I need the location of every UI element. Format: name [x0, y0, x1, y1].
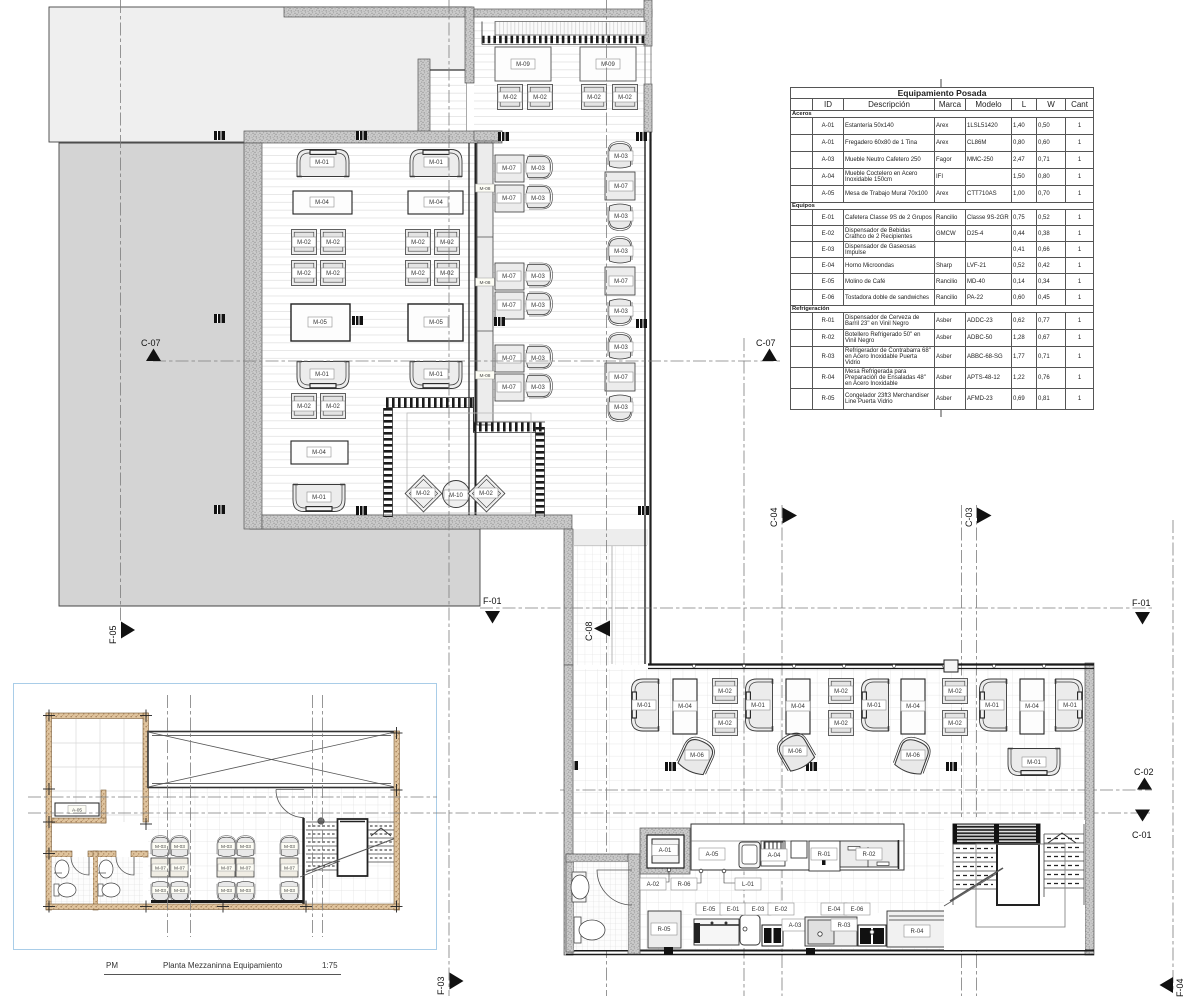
svg-text:M-04: M-04 — [1025, 704, 1039, 710]
svg-text:M-06: M-06 — [906, 753, 920, 759]
svg-text:M-08: M-08 — [480, 186, 491, 192]
svg-text:M-03: M-03 — [221, 844, 232, 850]
svg-text:M-02: M-02 — [326, 240, 340, 246]
svg-text:M-09: M-09 — [516, 62, 530, 68]
svg-text:M-02: M-02 — [718, 721, 732, 727]
svg-text:F-01: F-01 — [483, 596, 502, 606]
svg-text:M-03: M-03 — [221, 888, 232, 894]
svg-text:M-04: M-04 — [791, 704, 805, 710]
svg-text:M-03: M-03 — [531, 166, 545, 172]
svg-text:F-03: F-03 — [436, 976, 446, 995]
svg-text:M-01: M-01 — [1027, 760, 1041, 766]
svg-text:M-02: M-02 — [416, 491, 430, 497]
svg-text:M-07: M-07 — [221, 865, 232, 871]
svg-text:M-01: M-01 — [751, 703, 765, 709]
svg-text:M-01: M-01 — [429, 372, 443, 378]
svg-text:M-02: M-02 — [834, 689, 848, 695]
svg-text:M-02: M-02 — [297, 240, 311, 246]
svg-text:M-08: M-08 — [480, 373, 491, 379]
svg-text:M-01: M-01 — [312, 495, 326, 501]
svg-text:M-02: M-02 — [533, 95, 547, 101]
svg-text:M-07: M-07 — [240, 865, 251, 871]
svg-text:M-05: M-05 — [429, 320, 443, 326]
svg-text:M-01: M-01 — [1063, 703, 1077, 709]
svg-text:A-05: A-05 — [72, 807, 82, 813]
svg-text:M-03: M-03 — [614, 405, 628, 411]
svg-text:M-03: M-03 — [531, 196, 545, 202]
svg-text:A-01: A-01 — [659, 848, 672, 854]
svg-text:C-07: C-07 — [141, 338, 161, 348]
svg-text:M-05: M-05 — [313, 320, 327, 326]
svg-text:M-03: M-03 — [614, 345, 628, 351]
svg-text:M-02: M-02 — [326, 404, 340, 410]
svg-text:M-03: M-03 — [531, 274, 545, 280]
svg-text:F-05: F-05 — [108, 625, 118, 644]
svg-text:M-01: M-01 — [867, 703, 881, 709]
svg-text:M-07: M-07 — [502, 196, 516, 202]
svg-text:M-02: M-02 — [326, 271, 340, 277]
svg-text:M-02: M-02 — [503, 95, 517, 101]
svg-text:M-02: M-02 — [440, 240, 454, 246]
svg-text:M-07: M-07 — [155, 865, 166, 871]
svg-text:C-07: C-07 — [756, 338, 776, 348]
svg-text:M-07: M-07 — [614, 184, 628, 190]
svg-text:M-08: M-08 — [480, 280, 491, 286]
svg-text:M-03: M-03 — [155, 888, 166, 894]
svg-text:R-05: R-05 — [657, 927, 671, 933]
svg-text:M-07: M-07 — [502, 274, 516, 280]
svg-text:M-07: M-07 — [284, 865, 295, 871]
svg-text:M-03: M-03 — [284, 888, 295, 894]
svg-text:M-03: M-03 — [284, 844, 295, 850]
svg-text:M-02: M-02 — [297, 271, 311, 277]
svg-text:M-04: M-04 — [429, 200, 443, 206]
svg-text:M-02: M-02 — [834, 721, 848, 727]
svg-text:F-04: F-04 — [1175, 978, 1185, 997]
svg-text:M-03: M-03 — [614, 214, 628, 220]
svg-text:A-04: A-04 — [768, 853, 781, 859]
svg-text:M-02: M-02 — [587, 95, 601, 101]
svg-text:M-02: M-02 — [948, 689, 962, 695]
svg-text:M-06: M-06 — [788, 749, 802, 755]
svg-text:M-03: M-03 — [614, 249, 628, 255]
svg-text:M-04: M-04 — [312, 450, 326, 456]
svg-text:M-01: M-01 — [985, 703, 999, 709]
svg-text:C-08: C-08 — [584, 621, 594, 641]
svg-text:A-03: A-03 — [789, 923, 802, 929]
svg-text:C-03: C-03 — [964, 507, 974, 527]
svg-text:R-02: R-02 — [862, 852, 876, 858]
svg-text:M-02: M-02 — [411, 240, 425, 246]
svg-text:R-04: R-04 — [910, 929, 924, 935]
svg-text:M-07: M-07 — [614, 375, 628, 381]
svg-text:E-01: E-01 — [727, 907, 740, 913]
svg-text:M-07: M-07 — [502, 303, 516, 309]
svg-text:M-01: M-01 — [637, 703, 651, 709]
svg-text:M-07: M-07 — [614, 279, 628, 285]
svg-text:A-02: A-02 — [647, 882, 660, 888]
svg-text:M-01: M-01 — [315, 160, 329, 166]
svg-text:E-05: E-05 — [703, 907, 716, 913]
svg-text:R-01: R-01 — [817, 852, 831, 858]
svg-text:M-02: M-02 — [948, 721, 962, 727]
svg-text:L-01: L-01 — [742, 882, 755, 888]
svg-text:C-01: C-01 — [1132, 830, 1152, 840]
svg-text:F-01: F-01 — [1132, 598, 1151, 608]
svg-text:R-06: R-06 — [677, 882, 691, 888]
svg-text:M-07: M-07 — [502, 385, 516, 391]
svg-text:E-02: E-02 — [775, 907, 788, 913]
svg-text:M-03: M-03 — [240, 888, 251, 894]
svg-text:R-03: R-03 — [837, 923, 851, 929]
svg-text:M-02: M-02 — [618, 95, 632, 101]
svg-text:M-01: M-01 — [429, 160, 443, 166]
svg-text:M-10: M-10 — [449, 493, 463, 499]
svg-text:M-03: M-03 — [614, 309, 628, 315]
svg-text:M-07: M-07 — [174, 865, 185, 871]
svg-text:E-06: E-06 — [851, 907, 864, 913]
svg-text:M-03: M-03 — [174, 844, 185, 850]
svg-text:C-02: C-02 — [1134, 767, 1154, 777]
svg-text:M-02: M-02 — [718, 689, 732, 695]
svg-text:E-04: E-04 — [828, 907, 841, 913]
svg-text:M-03: M-03 — [531, 303, 545, 309]
svg-text:M-03: M-03 — [240, 844, 251, 850]
svg-text:M-03: M-03 — [155, 844, 166, 850]
svg-text:M-02: M-02 — [479, 491, 493, 497]
svg-text:A-05: A-05 — [706, 852, 719, 858]
svg-text:M-01: M-01 — [315, 372, 329, 378]
svg-text:M-07: M-07 — [502, 166, 516, 172]
svg-text:M-02: M-02 — [297, 404, 311, 410]
svg-text:M-02: M-02 — [440, 271, 454, 277]
svg-text:E-03: E-03 — [752, 907, 765, 913]
svg-text:C-04: C-04 — [769, 507, 779, 527]
svg-text:M-09: M-09 — [601, 62, 615, 68]
svg-text:M-04: M-04 — [906, 704, 920, 710]
svg-text:M-02: M-02 — [411, 271, 425, 277]
svg-text:M-04: M-04 — [678, 704, 692, 710]
svg-text:M-06: M-06 — [690, 753, 704, 759]
svg-text:M-03: M-03 — [614, 154, 628, 160]
svg-text:M-04: M-04 — [315, 200, 329, 206]
svg-text:M-03: M-03 — [531, 385, 545, 391]
svg-text:M-03: M-03 — [174, 888, 185, 894]
